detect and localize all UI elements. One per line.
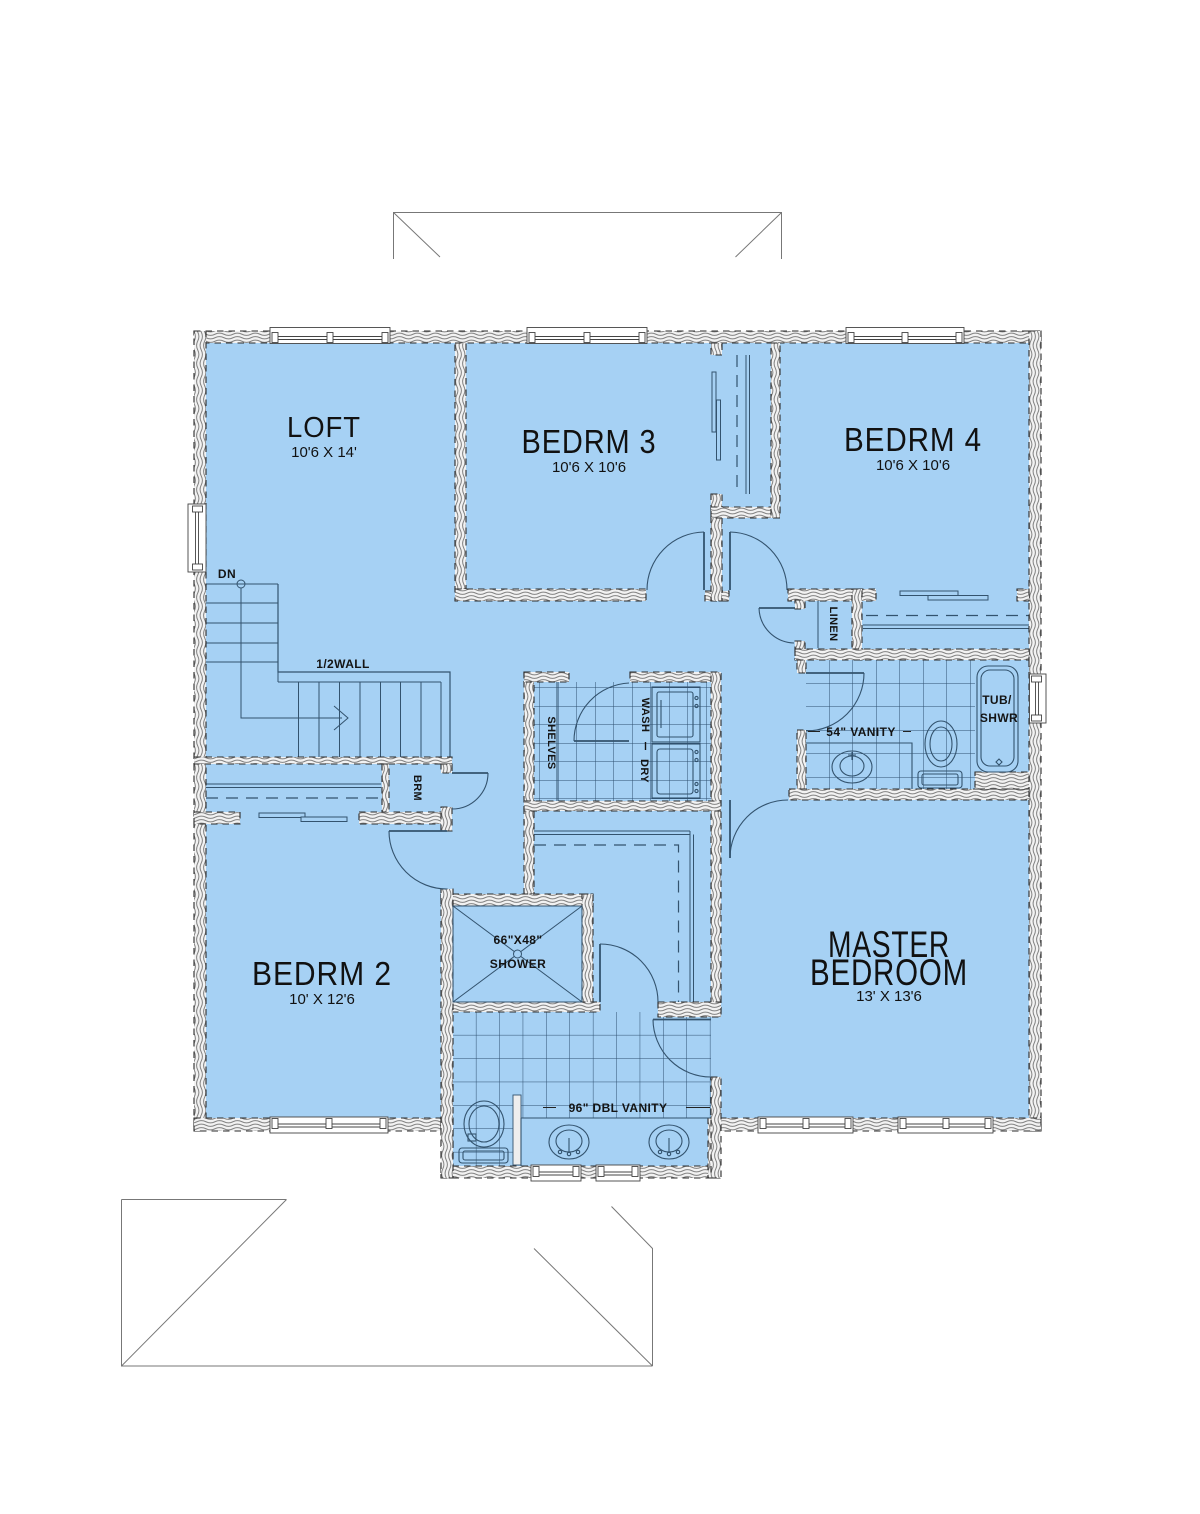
svg-text:10'6 X 10'6: 10'6 X 10'6 <box>876 457 950 474</box>
svg-text:10'6 X 14': 10'6 X 14' <box>291 444 357 461</box>
svg-text:10'6 X 10'6: 10'6 X 10'6 <box>552 459 626 476</box>
svg-text:TUB/: TUB/ <box>982 693 1012 707</box>
svg-text:SHOWER: SHOWER <box>490 957 546 971</box>
svg-text:SHWR: SHWR <box>980 711 1018 725</box>
svg-text:BEDRM 3: BEDRM 3 <box>522 423 657 460</box>
svg-text:54" VANITY: 54" VANITY <box>826 725 895 739</box>
svg-text:BEDROOM: BEDROOM <box>810 952 968 993</box>
svg-text:SHELVES: SHELVES <box>545 716 557 769</box>
svg-text:BEDRM 4: BEDRM 4 <box>844 421 982 458</box>
svg-text:13' X 13'6: 13' X 13'6 <box>856 988 922 1005</box>
svg-text:LINEN: LINEN <box>827 607 839 642</box>
svg-text:96" DBL VANITY: 96" DBL VANITY <box>569 1101 668 1115</box>
svg-text:WASH: WASH <box>639 698 651 733</box>
svg-text:10' X 12'6: 10' X 12'6 <box>289 991 355 1008</box>
svg-text:BEDRM 2: BEDRM 2 <box>252 955 392 992</box>
svg-text:DRY: DRY <box>638 759 650 783</box>
svg-text:1/2WALL: 1/2WALL <box>316 657 369 671</box>
svg-text:DN: DN <box>218 567 236 581</box>
svg-text:66"X48": 66"X48" <box>494 933 543 947</box>
svg-text:BRM: BRM <box>411 775 423 801</box>
svg-text:LOFT: LOFT <box>287 412 361 444</box>
